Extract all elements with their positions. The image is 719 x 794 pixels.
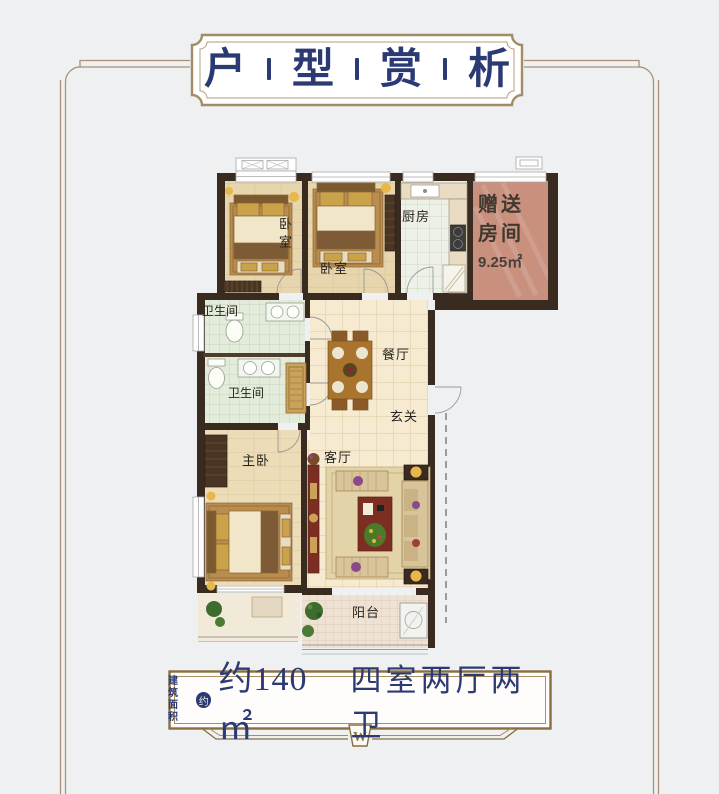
title-separator <box>267 58 271 80</box>
dining-set <box>328 331 372 410</box>
label-entry: 玄关 <box>390 410 418 425</box>
gift-room-line2: 房间 <box>478 220 548 249</box>
label-balcony: 阳台 <box>352 606 380 621</box>
label-bath-upper: 卫生间 <box>202 305 238 319</box>
label-living: 客厅 <box>324 451 352 466</box>
area-prefix: 建筑 面积 <box>168 676 189 724</box>
area-seal: 约 <box>196 692 211 708</box>
title-separator <box>355 58 359 80</box>
label-master: 主卧 <box>242 454 270 469</box>
title-char: 户 <box>204 48 246 90</box>
area-prefix-line1: 建筑 <box>168 676 189 700</box>
label-bedroom-left: 卧室 <box>276 217 291 253</box>
floorplan-poster: 户 型 赏 析 <box>0 0 719 794</box>
area-banner: W 建筑 面积 约 约140㎡ 四室两厅两卫 <box>160 666 560 762</box>
entry-door <box>435 387 461 413</box>
label-bath-lower: 卫生间 <box>228 387 264 401</box>
label-bedroom-mid: 卧室 <box>320 262 348 277</box>
layout-text: 四室两厅两卫 <box>350 655 552 745</box>
title-banner: 户 型 赏 析 <box>190 33 524 105</box>
title-char: 赏 <box>380 48 422 90</box>
page-title: 户 型 赏 析 <box>190 33 524 105</box>
title-char: 型 <box>292 48 334 90</box>
gift-room-line1: 赠送 <box>478 191 548 220</box>
title-char: 析 <box>468 48 510 90</box>
gift-room-area: 9.25㎡ <box>478 251 548 272</box>
label-kitchen: 厨房 <box>402 210 430 225</box>
label-dining: 餐厅 <box>382 348 410 363</box>
living-set <box>308 453 431 584</box>
area-prefix-line2: 面积 <box>168 700 189 724</box>
area-value: 约140㎡ <box>218 651 337 749</box>
label-gift-room: 赠送 房间 9.25㎡ <box>478 191 548 272</box>
title-separator <box>443 58 447 80</box>
area-banner-content: 建筑 面积 约 约140㎡ 四室两厅两卫 <box>168 670 552 730</box>
bed-mid <box>313 183 395 267</box>
